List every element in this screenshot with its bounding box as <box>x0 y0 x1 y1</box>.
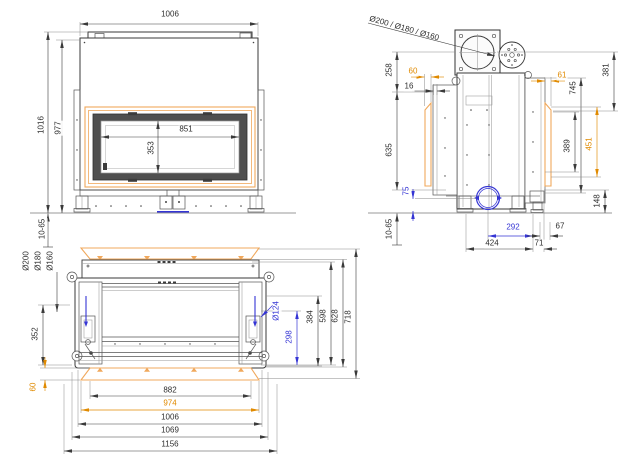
dim-side-frame-451: 451 <box>586 136 595 151</box>
dim-plan-width-974: 974 <box>162 400 177 409</box>
dim-front-glass-height: 353 <box>148 140 157 155</box>
top-view <box>38 248 360 454</box>
dim-plan-depth-598: 598 <box>320 308 329 323</box>
dim-front-overall-height: 1016 <box>38 115 47 135</box>
dim-plan-width-1156: 1156 <box>160 441 179 450</box>
label-plan-flue-200: Ø200 <box>23 250 32 272</box>
dim-plan-frame-60: 60 <box>30 382 39 393</box>
technical-drawing: 1006 1016 977 851 353 10-65 Ø200 / Ø180 … <box>0 0 624 460</box>
drawing-canvas <box>0 0 624 460</box>
dim-plan-outlet-diameter: Ø124 <box>273 300 282 322</box>
dim-side-frame-front: 60 <box>408 68 419 77</box>
front-view <box>30 22 296 247</box>
dim-side-height-389: 389 <box>564 138 573 153</box>
dim-side-height-635: 635 <box>386 142 395 157</box>
label-plan-flue-160: Ø160 <box>47 250 56 272</box>
dim-side-gap-16: 16 <box>404 83 415 92</box>
dim-front-glass-width: 851 <box>178 126 193 135</box>
dim-side-flue-center: 258 <box>386 62 395 77</box>
dim-side-height-381: 381 <box>603 62 612 77</box>
side-view <box>368 23 618 252</box>
dim-plan-depth-628: 628 <box>332 308 341 323</box>
label-plan-flue-180: Ø180 <box>35 250 44 272</box>
dim-front-foot-range: 10-65 <box>39 218 48 240</box>
dim-plan-outlet-298: 298 <box>286 329 295 344</box>
dim-side-outlet-292: 292 <box>505 224 520 233</box>
dim-side-height-745: 745 <box>570 80 579 95</box>
dim-side-base-424: 424 <box>484 240 499 249</box>
dim-side-rear-71: 71 <box>534 240 545 249</box>
dim-side-foot-range: 10-65 <box>386 218 395 240</box>
dim-side-outlet-75: 75 <box>403 186 412 197</box>
dim-plan-depth-384: 384 <box>307 309 316 324</box>
dim-side-frame-rear: 61 <box>557 72 568 81</box>
dim-side-rear-67: 67 <box>555 223 566 232</box>
dim-plan-width-882: 882 <box>162 387 177 396</box>
dim-side-base-148: 148 <box>594 193 603 208</box>
dim-plan-depth-718: 718 <box>345 309 354 324</box>
dim-front-overall-width: 1006 <box>160 11 180 20</box>
dim-plan-flue-352: 352 <box>32 326 41 341</box>
dim-front-body-height: 977 <box>55 120 64 135</box>
dim-plan-width-1069: 1069 <box>160 427 180 436</box>
dim-plan-width-1006: 1006 <box>160 414 180 423</box>
